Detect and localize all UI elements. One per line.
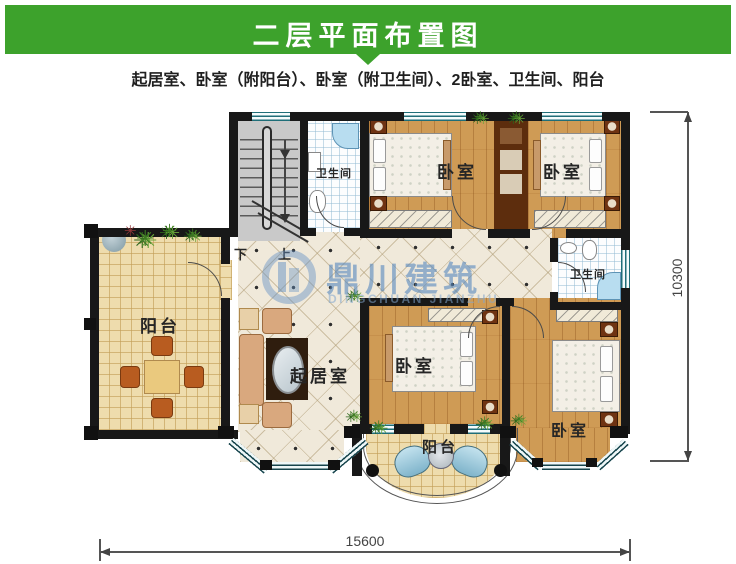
wardrobe: [369, 210, 452, 228]
window: [404, 112, 466, 121]
wall: [221, 298, 230, 436]
corner-block: [218, 426, 234, 438]
wall: [360, 229, 452, 238]
wall: [360, 298, 369, 432]
dimension-arrow-down-icon: [684, 451, 692, 461]
plant-icon: ✳: [510, 110, 523, 125]
dimension-tick: [650, 111, 688, 113]
wall: [300, 228, 316, 236]
pillow: [460, 361, 473, 386]
pillow: [600, 376, 613, 402]
bay-post: [532, 458, 543, 467]
outdoor-chair: [120, 366, 140, 388]
dimension-tick: [650, 460, 688, 462]
side-table: [239, 308, 259, 330]
bay-post: [328, 460, 340, 470]
nightstand: [370, 196, 387, 211]
bay-window: [542, 462, 590, 470]
bay-post: [586, 458, 597, 467]
stair-arrow-down-icon: [280, 150, 290, 159]
nightstand: [482, 400, 498, 414]
wall: [550, 302, 622, 310]
room-label-bedroom-b2: 卧室: [538, 417, 602, 441]
plant-icon: ✳: [478, 416, 491, 432]
pillow: [373, 139, 386, 163]
wardrobe: [556, 308, 618, 322]
nightstand: [600, 322, 618, 337]
armchair: [262, 308, 292, 334]
plant-icon: ✳: [474, 110, 487, 125]
dimension-arrow-left-icon: [100, 548, 110, 556]
balcony-door-gap: [424, 424, 450, 434]
room-label-bedroom-t2: 卧室: [532, 158, 594, 183]
wall: [221, 236, 230, 264]
stair-label-down: 下: [234, 244, 250, 263]
pillow: [600, 346, 613, 372]
room-label-bedroom-t1: 卧室: [426, 158, 488, 183]
corner-block: [84, 318, 96, 330]
outdoor-table: [144, 360, 180, 394]
dimension-line-right: [687, 112, 689, 462]
armchair: [262, 402, 292, 428]
wall: [488, 229, 530, 238]
pillow: [373, 167, 386, 191]
window: [542, 112, 602, 121]
side-table: [239, 404, 259, 424]
room-label-balcony-bottom: 阳台: [406, 436, 474, 457]
wall: [566, 229, 622, 238]
stair-arrow-up-icon: [280, 214, 290, 223]
outdoor-chair: [151, 336, 173, 356]
watermark-logo-building: [278, 262, 286, 292]
dimension-arrow-up-icon: [684, 112, 692, 122]
room-label-bath-mid: 卫生间: [556, 266, 620, 282]
dimension-height: 10300: [669, 243, 685, 313]
closet-shelf: [500, 128, 522, 144]
room-label-bedroom-b1: 卧室: [385, 352, 445, 377]
toilet-icon: [582, 240, 597, 260]
header-pointer-icon: [356, 54, 380, 65]
corner-block: [344, 426, 360, 438]
bay-post: [260, 460, 272, 470]
outdoor-chair: [184, 366, 204, 388]
corner-block: [84, 426, 98, 440]
closet-shelf: [500, 150, 522, 170]
column: [494, 464, 507, 477]
nightstand: [600, 412, 618, 427]
corner-block: [500, 426, 516, 438]
watermark-text-en: DINGCHUAN JIANZHU: [328, 292, 499, 306]
wall: [90, 228, 99, 439]
window: [621, 250, 630, 288]
wall: [229, 112, 238, 236]
plant-icon: ✳: [162, 222, 177, 240]
wall: [502, 298, 510, 432]
window: [252, 112, 290, 121]
wall: [550, 238, 558, 262]
sink-icon: [560, 242, 577, 254]
wall: [90, 430, 238, 439]
plant-icon: ✳: [513, 412, 525, 426]
plant-icon: ✳: [124, 224, 137, 239]
sofa: [239, 334, 264, 406]
page-title: 二层平面布置图: [5, 14, 731, 53]
closet-shelf: [500, 174, 522, 194]
room-label-living: 起居室: [282, 362, 358, 387]
dimension-line-bottom: [100, 551, 630, 553]
room-label-balcony-left: 阳台: [120, 312, 200, 337]
nightstand: [604, 196, 620, 211]
column: [366, 464, 379, 477]
room-label-bath-top: 卫生间: [305, 165, 363, 181]
plant-icon: ✳: [186, 228, 199, 244]
plant-icon: ✳: [348, 408, 360, 422]
floor-plan-page: 二层平面布置图 起居室、卧室（附阳台）、卧室（附卫生间）、2卧室、卫生间、阳台: [0, 0, 736, 564]
dimension-arrow-right-icon: [620, 548, 630, 556]
corner-block: [84, 224, 98, 238]
corner-block: [610, 426, 628, 438]
nightstand: [604, 119, 620, 134]
plant-icon: ✳: [136, 228, 154, 250]
dimension-width: 15600: [330, 533, 400, 549]
subtitle: 起居室、卧室（附阳台）、卧室（附卫生间）、2卧室、卫生间、阳台: [0, 66, 736, 90]
watermark-logo-building: [289, 268, 299, 292]
nightstand: [370, 119, 387, 134]
bay-window: [270, 462, 332, 470]
plant-icon: ✳: [372, 420, 385, 436]
outdoor-chair: [151, 398, 173, 418]
